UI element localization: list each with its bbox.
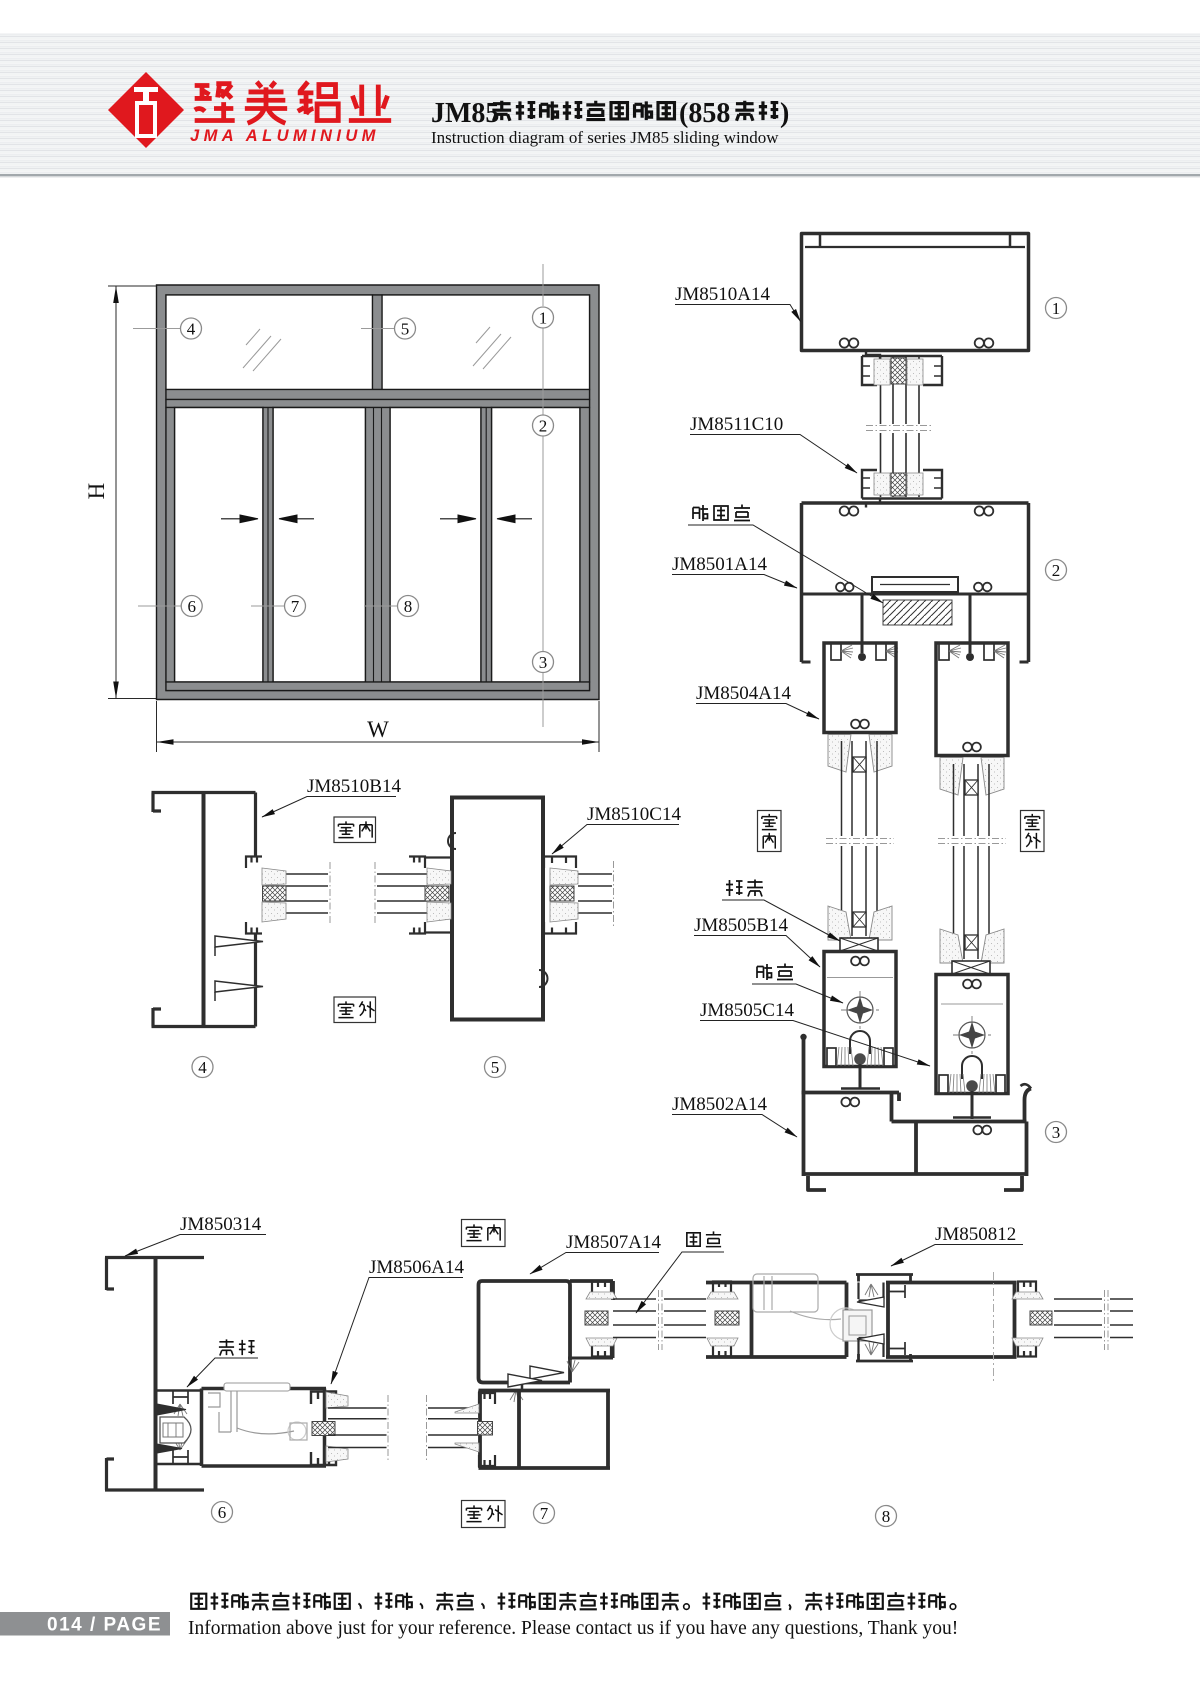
- svg-text:JMA ALUMINIUM: JMA ALUMINIUM: [190, 127, 380, 145]
- svg-text:H: H: [84, 483, 109, 500]
- svg-text:JM8505C14: JM8505C14: [700, 1000, 794, 1021]
- svg-text:2: 2: [1052, 561, 1061, 580]
- svg-text:6: 6: [187, 597, 196, 616]
- svg-text:JM850812: JM850812: [935, 1224, 1016, 1245]
- svg-text:4: 4: [198, 1058, 207, 1077]
- svg-text:JM8510C14: JM8510C14: [587, 804, 681, 825]
- svg-text:JM8511C10: JM8511C10: [690, 414, 783, 435]
- svg-text:JM8502A14: JM8502A14: [672, 1094, 768, 1115]
- svg-text:6: 6: [218, 1503, 227, 1522]
- svg-text:JM8506A14: JM8506A14: [369, 1257, 465, 1278]
- svg-text:Information above just for you: Information above just for your referenc…: [188, 1618, 958, 1639]
- svg-text:4: 4: [187, 320, 196, 339]
- svg-text:W: W: [367, 717, 389, 742]
- svg-text:2: 2: [539, 417, 548, 436]
- svg-text:5: 5: [491, 1058, 500, 1077]
- svg-text:JM8510B14: JM8510B14: [307, 776, 401, 797]
- svg-text:7: 7: [540, 1504, 549, 1523]
- svg-text:8: 8: [882, 1507, 891, 1526]
- svg-text:1: 1: [1052, 299, 1061, 318]
- svg-text:014 / PAGE: 014 / PAGE: [47, 1615, 162, 1636]
- svg-text:JM85: JM85: [431, 98, 499, 129]
- svg-text:JM850314: JM850314: [180, 1214, 262, 1235]
- svg-text:): ): [780, 98, 789, 129]
- svg-text:JM8501A14: JM8501A14: [672, 554, 768, 575]
- svg-text:JM8505B14: JM8505B14: [694, 915, 788, 936]
- svg-text:3: 3: [539, 653, 548, 672]
- svg-text:Instruction diagram of series: Instruction diagram of series JM85 slidi…: [431, 128, 779, 147]
- svg-text:7: 7: [291, 597, 300, 616]
- svg-text:5: 5: [401, 320, 410, 339]
- svg-text:8: 8: [404, 597, 413, 616]
- svg-text:3: 3: [1052, 1123, 1061, 1142]
- svg-text:(858: (858: [679, 98, 730, 129]
- svg-text:JM8507A14: JM8507A14: [566, 1232, 662, 1253]
- svg-text:JM8504A14: JM8504A14: [696, 683, 792, 704]
- svg-text:JM8510A14: JM8510A14: [675, 284, 771, 305]
- svg-text:1: 1: [539, 309, 548, 328]
